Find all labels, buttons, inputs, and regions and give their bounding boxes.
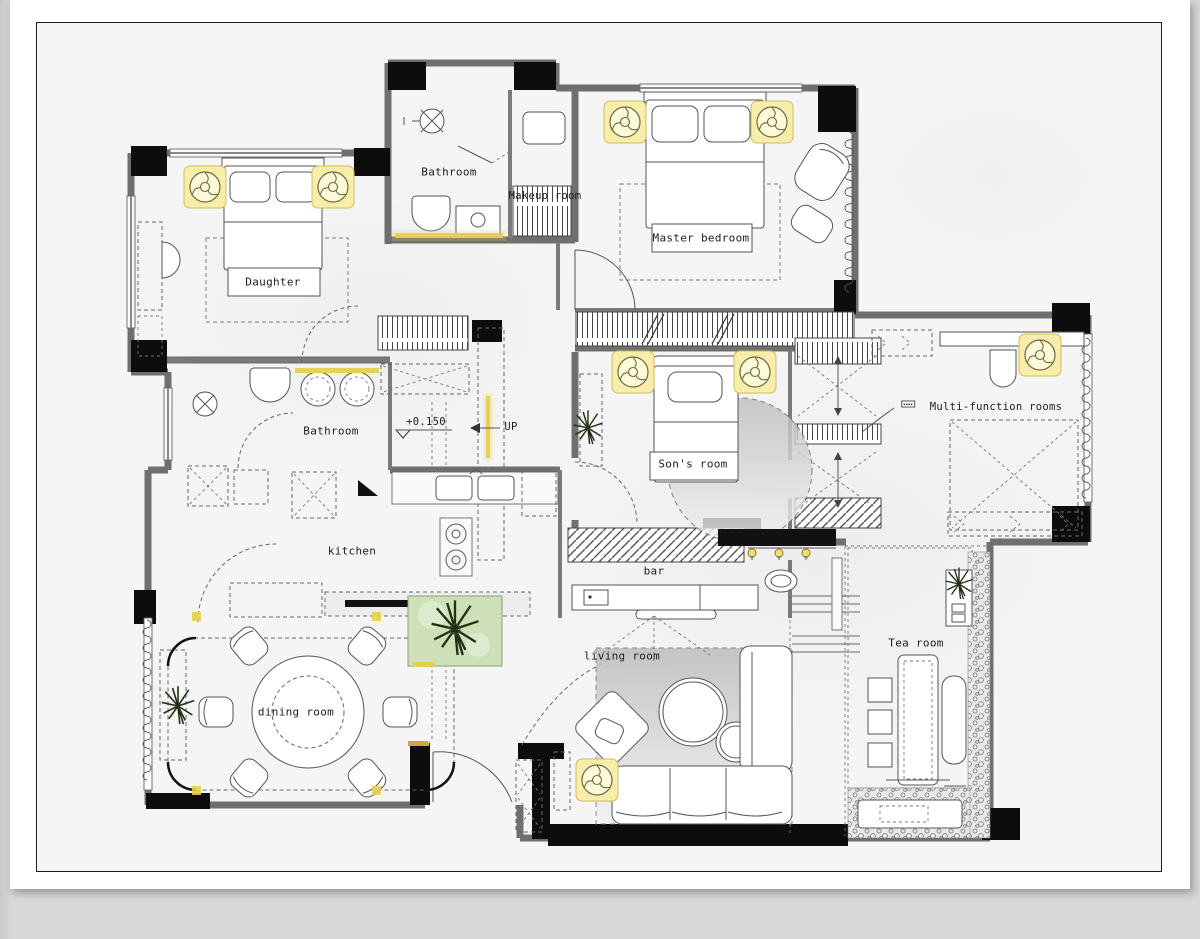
floorplan-page: Bathroom Makeup room Master bedroom Daug… [0,0,1200,939]
floorplan-drawing [0,0,1200,939]
bathroom-main-fixtures [193,368,379,416]
sons-room-furniture [574,356,740,482]
dining-furniture [160,612,434,801]
courtyard-garden [408,596,502,666]
daughter-room-furniture [138,158,324,356]
makeup-room-fixtures [523,112,565,144]
tea-room-furniture [848,552,990,838]
kitchen-fixtures [392,470,558,576]
bathroom-top-fixtures [392,109,506,241]
